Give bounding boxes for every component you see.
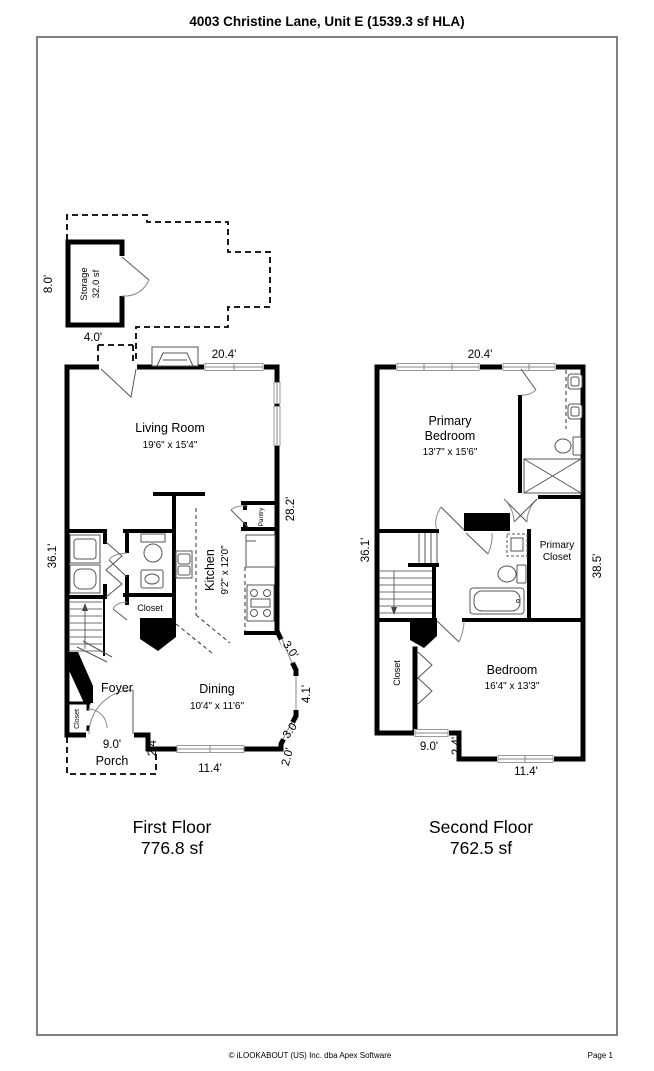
page-title: 4003 Christine Lane, Unit E (1539.3 sf H…: [189, 14, 464, 29]
living-room-dims: 19'6" x 15'4": [143, 440, 198, 451]
primary-bedroom-label-2: Bedroom: [425, 429, 476, 443]
dining-label: Dining: [199, 682, 234, 696]
primary-closet-label-1: Primary: [540, 540, 574, 551]
storage-label: Storage: [79, 267, 90, 300]
dim-step: 2.4': [147, 738, 159, 756]
dim-right: 28.2': [285, 497, 297, 522]
closet-label: Closet: [392, 660, 402, 686]
floorplan-drawing: 4003 Christine Lane, Unit E (1539.3 sf H…: [0, 0, 654, 1071]
fridge-symbol: [246, 535, 275, 567]
dining-dims: 10'4" x 11'6": [190, 701, 245, 712]
storage-area-label: 32.0 sf: [91, 269, 102, 298]
primary-bedroom-dims: 13'7" x 15'6": [423, 447, 478, 458]
thick-wall: [464, 513, 510, 531]
kitchen-sink-symbol: [176, 551, 192, 578]
dim-step: 2.4': [451, 737, 463, 755]
sink-symbol: [568, 374, 582, 389]
dim-storage-width: 4.0': [84, 332, 102, 344]
bedroom-dims: 16'4" x 13'3": [485, 681, 540, 692]
second-floor-area: 762.5 sf: [450, 838, 512, 858]
first-floor-title: First Floor: [133, 817, 212, 837]
dim-porch: 9.0': [103, 739, 121, 751]
footer-page-number: Page 1: [588, 1051, 614, 1060]
dim-right: 38.5': [592, 554, 604, 579]
foyer-closet-label: Closet: [74, 709, 81, 729]
first-floor-area: 776.8 sf: [141, 838, 203, 858]
primary-bedroom-label-1: Primary: [428, 414, 472, 428]
dim-top: 20.4': [468, 349, 493, 361]
first-floor-plan: Storage 32.0 sf 8.0' 4.0': [43, 215, 313, 858]
second-floor-exterior-walls: [377, 367, 583, 759]
floorplan-page: 4003 Christine Lane, Unit E (1539.3 sf H…: [0, 0, 654, 1071]
toilet-symbol: [498, 565, 526, 583]
kitchen-dims: 9'2" x 12'0": [220, 545, 231, 595]
dim-top: 20.4': [212, 349, 237, 361]
kitchen-label: Kitchen: [203, 549, 217, 591]
second-floor-plan: Primary Bedroom 13'7" x 15'6" Primary Cl…: [360, 349, 604, 858]
bathtub-symbol: [470, 588, 524, 614]
dim-bottom: 11.4': [198, 763, 222, 775]
dim-storage-height: 8.0': [43, 275, 55, 293]
second-floor-title: Second Floor: [429, 817, 533, 837]
primary-closet-label-2: Closet: [543, 552, 572, 563]
stove-symbol: [247, 585, 274, 621]
foyer-label: Foyer: [101, 681, 133, 695]
footer-copyright: © iLOOKABOUT (US) Inc. dba Apex Software: [229, 1051, 392, 1060]
shower-symbol: [524, 459, 581, 493]
pantry-label: Pantry: [258, 507, 265, 527]
porch-label: Porch: [96, 754, 129, 768]
storage-door-leaf: [122, 257, 149, 280]
storage-room: Storage 32.0 sf 8.0' 4.0': [43, 242, 149, 344]
sink-symbol: [568, 404, 582, 419]
hall-closet-label: Closet: [137, 603, 163, 613]
dim-bottom: 11.4': [514, 766, 538, 778]
vanity-symbol: [507, 534, 527, 556]
living-room-label: Living Room: [135, 421, 204, 435]
storage-door-arc: [122, 280, 149, 296]
dim-bay2: 4.1': [301, 685, 313, 703]
fireplace-symbol: [152, 347, 198, 366]
dim-left: 36.1': [360, 538, 372, 563]
dim-left: 36.1': [47, 544, 59, 569]
sink-symbol: [141, 570, 163, 588]
dim-bottom-left: 9.0': [420, 741, 438, 753]
bedroom-label: Bedroom: [487, 663, 538, 677]
